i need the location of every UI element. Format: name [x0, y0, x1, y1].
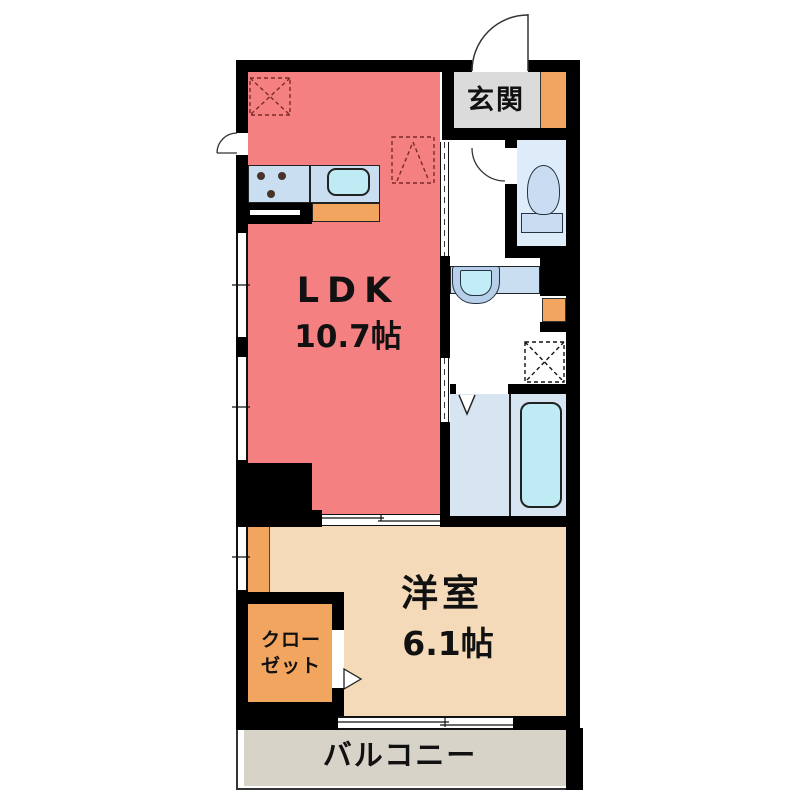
window-western: [236, 527, 248, 590]
entrance-bottom-wall: [442, 128, 566, 140]
floor-plan: 玄関 LDK 10.7帖 洋室 6.1帖 クロー ゼット バルコニー: [0, 0, 800, 800]
closet-floor: [248, 604, 332, 702]
stove-burner-3: [267, 190, 275, 198]
bath-top-wall-b: [508, 384, 566, 394]
closet-label-line1: クロー: [252, 630, 330, 651]
closet-right-wall-a: [332, 604, 344, 630]
kitchen-orange-cabinet: [312, 203, 380, 222]
back-door-arc: [217, 133, 237, 153]
washbasin-bowl-inner: [460, 270, 492, 296]
washroom-right-wall: [540, 258, 566, 296]
bath-top-wall-a: [450, 384, 456, 394]
closet-bottom-wall: [236, 702, 344, 716]
ldk-label: LDK: [276, 272, 420, 311]
window-balcony: [338, 716, 513, 730]
bathtub: [520, 402, 562, 508]
sliding-door-western: [322, 514, 440, 526]
wall-bottom-left: [236, 716, 338, 730]
wall-top-left: [236, 60, 472, 72]
toilet-left-wall-a: [505, 140, 517, 148]
bath-divider: [509, 394, 511, 516]
bath-bottom-wall: [440, 516, 566, 527]
entrance-door-opening: [472, 60, 528, 72]
toilet-tank: [521, 213, 563, 233]
closet-door-opening: [332, 630, 344, 688]
toilet-left-wall-b: [505, 184, 517, 246]
window-ldk-2: [236, 357, 248, 460]
kitchen-sink: [327, 168, 370, 196]
toilet-door-arc: [472, 148, 505, 181]
back-door-opening: [236, 133, 248, 155]
balcony-right-wall: [566, 728, 583, 790]
entrance-label: 玄関: [452, 86, 540, 116]
wall-left-a: [236, 60, 248, 133]
slider-filler: [312, 510, 322, 527]
kitchen-cabinet-stripe: [250, 210, 300, 215]
wall-left-b: [236, 155, 248, 233]
western-room-size-label: 6.1帖: [380, 626, 516, 662]
western-room-orange-strip: [248, 526, 270, 592]
wall-bottom-right: [513, 716, 580, 730]
entrance-orange-strip: [540, 72, 566, 128]
ldk-size-label: 10.7帖: [276, 320, 420, 354]
sliding-door-hall: [440, 142, 449, 256]
wall-left-c: [236, 337, 248, 357]
wall-right: [566, 60, 580, 716]
sliding-door-washroom: [440, 358, 449, 422]
pipe-space: [542, 298, 566, 322]
western-room-label: 洋室: [380, 574, 504, 615]
kitchen-counter-divider: [309, 165, 311, 203]
toilet-bottom-wall: [505, 246, 566, 258]
stove-burner-1: [257, 172, 265, 180]
washroom-right-stub: [540, 322, 566, 332]
ldk-southwest-wall: [236, 463, 312, 527]
stove-burner-2: [278, 172, 286, 180]
closet-top-wall: [236, 592, 344, 604]
toilet-bowl: [527, 165, 560, 215]
washing-machine-space-symbol: [525, 342, 564, 382]
window-ldk-1: [236, 233, 248, 337]
ldk-right-wall-upper: [440, 256, 450, 358]
balcony-label: バルコニー: [290, 740, 510, 772]
wall-left-e: [236, 590, 248, 716]
ldk-right-wall-lower: [440, 422, 450, 527]
closet-label-line2: ゼット: [252, 656, 330, 677]
